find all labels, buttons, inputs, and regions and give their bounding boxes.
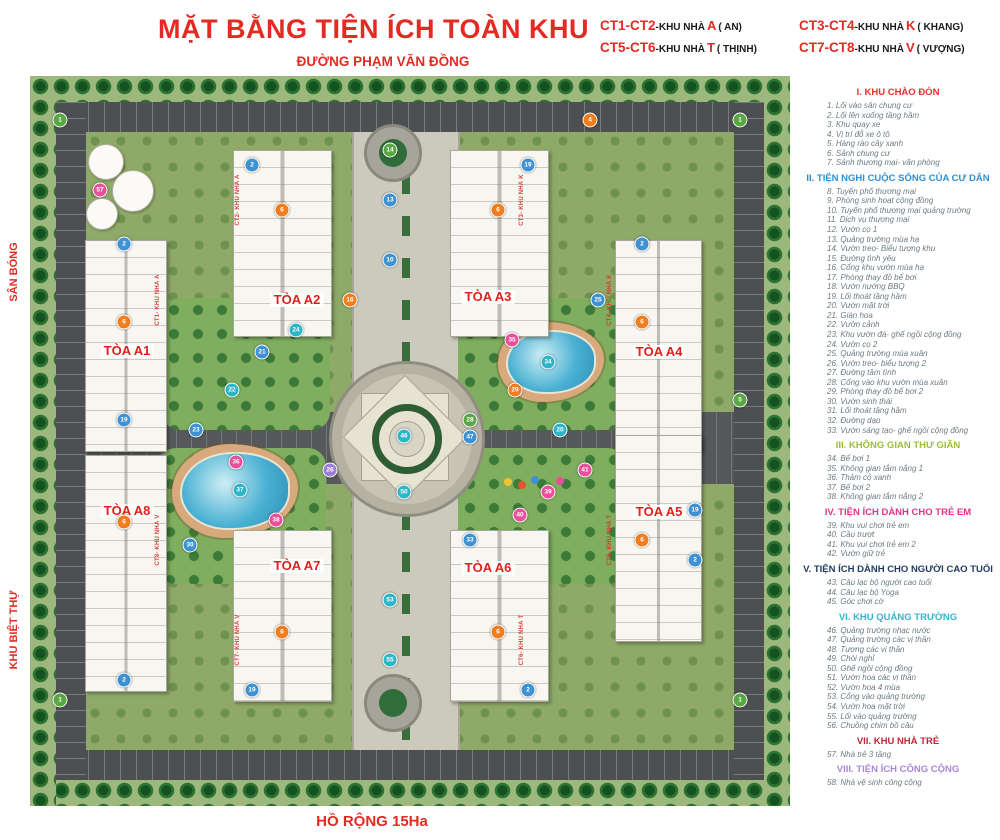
legend-item: 45. Góc chơi cờ <box>797 597 999 607</box>
legend-item: 10. Tuyến phố thương mại quảng trường <box>797 206 999 216</box>
legend-item: 24. Vườn cọ 2 <box>797 340 999 350</box>
amenity-marker-29: 29 <box>508 383 523 398</box>
amenity-marker-4: 4 <box>583 113 598 128</box>
tree-belt-top <box>30 76 790 102</box>
amenity-marker-6: 6 <box>275 203 290 218</box>
building-key-text: KHU NHÀ <box>659 44 705 55</box>
tower-label-tòa-a4: TÒA A4 <box>633 345 686 359</box>
amenity-marker-19: 19 <box>245 683 260 698</box>
tree-belt-right <box>764 76 790 806</box>
ring-road-left <box>56 102 86 780</box>
legend-item: 35. Không gian tắm nắng 1 <box>797 464 999 474</box>
building-key-letter: V <box>906 40 915 55</box>
legend-item: 28. Cổng vào khu vườn mùa xuân <box>797 378 999 388</box>
legend-item: 46. Quảng trường nhạc nước <box>797 626 999 636</box>
legend-item: 8. Tuyến phố thương mại <box>797 187 999 197</box>
amenity-marker-46: 46 <box>397 429 412 444</box>
amenity-marker-14: 14 <box>383 143 398 158</box>
legend-panel: I. KHU CHÀO ĐÓN1. Lối vào sân chung cư2.… <box>797 82 999 790</box>
amenity-marker-36: 36 <box>229 455 244 470</box>
legend-item: 14. Vườn treo- Biểu tượng khu <box>797 244 999 254</box>
legend-item: 49. Chòi nghỉ <box>797 654 999 664</box>
building-key-suffix: ( KHANG) <box>917 22 963 33</box>
legend-item: 20. Vườn mặt trời <box>797 301 999 311</box>
building-a8 <box>85 455 167 692</box>
amenity-marker-23: 23 <box>189 423 204 438</box>
building-tag-3: CT3- KHU NHÀ K <box>519 174 525 225</box>
legend-item: 50. Ghế ngồi cộng đồng <box>797 664 999 674</box>
kindergarten-building-2 <box>112 170 154 212</box>
ring-road-right <box>734 102 764 780</box>
roundabout-south <box>364 674 422 732</box>
amenity-marker-2: 2 <box>245 158 260 173</box>
legend-item: 39. Khu vui chơi trẻ em <box>797 521 999 531</box>
building-key-letter: T <box>707 40 715 55</box>
legend-section-header-6: VI. KHU QUẢNG TRƯỜNG <box>797 612 999 623</box>
amenity-marker-1: 1 <box>733 693 748 708</box>
legend-section-header-2: II. TIỆN NGHI CUỘC SỐNG CỦA CƯ DÂN <box>797 173 999 184</box>
legend-item: 37. Bể bơi 2 <box>797 483 999 493</box>
amenity-marker-2: 2 <box>117 237 132 252</box>
amenity-marker-5: 5 <box>733 393 748 408</box>
amenity-marker-2: 2 <box>117 673 132 688</box>
building-a3 <box>450 150 549 337</box>
edge-label-khu-biet-thu: KHU BIỆT THỰ <box>8 591 20 670</box>
legend-item: 33. Vườn sáng tạo- ghế ngồi cộng đồng <box>797 426 999 436</box>
building-a7 <box>233 530 332 702</box>
building-tag-5: CT5- KHU NHÀ T <box>607 515 613 566</box>
legend-item: 29. Phòng thay đồ bể bơi 2 <box>797 387 999 397</box>
amenity-marker-6: 6 <box>635 533 650 548</box>
legend-item: 7. Sảnh thương mại- văn phòng <box>797 158 999 168</box>
amenity-marker-2: 2 <box>688 553 703 568</box>
legend-item: 21. Giàn hoa <box>797 311 999 321</box>
legend-section-header-5: V. TIỆN ÍCH DÀNH CHO NGƯỜI CAO TUỔI <box>797 564 999 575</box>
building-key-code: CT1-CT2 <box>600 18 656 33</box>
legend-item: 9. Phòng sinh hoạt cộng đồng <box>797 196 999 206</box>
legend-item: 25. Quảng trường mùa xuân <box>797 349 999 359</box>
legend-item: 4. Vị trí đỗ xe ô tô <box>797 130 999 140</box>
amenity-marker-50: 50 <box>397 485 412 500</box>
building-key: CT1-CT2 - KHU NHÀA( AN)CT3-CT4 - KHU NHÀ… <box>600 18 998 62</box>
legend-item: 16. Cổng khu vườn mùa hạ <box>797 263 999 273</box>
amenity-marker-35: 35 <box>505 333 520 348</box>
building-tag-7: CT7- KHU NHÀ V <box>235 614 241 665</box>
building-a6 <box>450 530 549 702</box>
amenity-marker-6: 6 <box>275 625 290 640</box>
legend-item: 57. Nhà trẻ 3 tầng <box>797 750 999 760</box>
amenity-marker-25: 25 <box>591 293 606 308</box>
amenity-marker-1: 1 <box>53 693 68 708</box>
legend-item: 2. Lối lên xuống tầng hầm <box>797 111 999 121</box>
playground <box>504 478 512 486</box>
amenity-marker-19: 19 <box>521 158 536 173</box>
building-key-line-1: CT1-CT2 - KHU NHÀA( AN) <box>600 18 799 40</box>
amenity-marker-47: 47 <box>463 430 478 445</box>
legend-item: 30. Vườn sinh thái <box>797 397 999 407</box>
amenity-marker-38: 38 <box>269 513 284 528</box>
legend-item: 36. Thảm cỏ xanh <box>797 473 999 483</box>
amenity-marker-2: 2 <box>521 683 536 698</box>
building-key-code: CT7-CT8 <box>799 40 855 55</box>
building-tag-4: CT4- KHU NHÀ K <box>607 274 613 325</box>
legend-item: 48. Tượng các vị thần <box>797 645 999 655</box>
building-tag-6: CT6- KHU NHÀ T <box>519 615 525 666</box>
building-key-line-2: CT3-CT4 - KHU NHÀK( KHANG) <box>799 18 998 40</box>
building-tag-8: CT8- KHU NHÀ V <box>155 514 161 565</box>
road-label-top: ĐƯỜNG PHẠM VĂN ĐỒNG <box>297 54 470 69</box>
legend-item: 31. Lối thoát tầng hầm <box>797 406 999 416</box>
tree-belt-bottom <box>30 780 790 806</box>
legend-item: 44. Câu lạc bộ Yoga <box>797 588 999 598</box>
legend-item: 34. Bể bơi 1 <box>797 454 999 464</box>
building-key-suffix: ( AN) <box>718 22 742 33</box>
legend-section-header-1: I. KHU CHÀO ĐÓN <box>797 87 999 98</box>
site-plan-page: MẶT BẰNG TIỆN ÍCH TOÀN KHU CT1-CT2 - KHU… <box>0 0 1000 840</box>
legend-item: 13. Quảng trường mùa hạ <box>797 235 999 245</box>
building-key-letter: K <box>906 18 915 33</box>
legend-item: 52. Vườn hoa 4 mùa <box>797 683 999 693</box>
tower-label-tòa-a1: TÒA A1 <box>101 344 154 358</box>
page-title: MẶT BẰNG TIỆN ÍCH TOÀN KHU <box>158 14 589 45</box>
legend-item: 54. Vườn hoa mặt trời <box>797 702 999 712</box>
legend-item: 51. Vườn hoa các vị thần <box>797 673 999 683</box>
legend-item: 58. Nhà vệ sinh công cộng <box>797 778 999 788</box>
amenity-marker-39: 39 <box>541 485 556 500</box>
building-key-line-3: CT5-CT6 - KHU NHÀT( THỊNH) <box>600 40 799 62</box>
amenity-marker-16: 16 <box>343 293 358 308</box>
amenity-marker-41: 41 <box>578 463 593 478</box>
amenity-marker-21: 21 <box>255 345 270 360</box>
amenity-marker-37: 37 <box>233 483 248 498</box>
legend-item: 41. Khu vui chơi trẻ em 2 <box>797 540 999 550</box>
amenity-marker-40: 40 <box>513 508 528 523</box>
amenity-marker-33: 33 <box>463 533 478 548</box>
building-key-line-4: CT7-CT8 - KHU NHÀV( VƯỢNG) <box>799 40 998 62</box>
kindergarten-building-3 <box>86 198 118 230</box>
amenity-marker-30: 30 <box>183 538 198 553</box>
amenity-marker-6: 6 <box>491 203 506 218</box>
amenity-marker-24: 24 <box>289 323 304 338</box>
edge-label-lake: HỒ RỘNG 15Ha <box>316 813 428 830</box>
building-a5 <box>615 435 702 642</box>
building-a2 <box>233 150 332 337</box>
building-tag-1: CT1- KHU NHÀ A <box>155 274 161 325</box>
legend-item: 19. Lối thoát tầng hầm <box>797 292 999 302</box>
building-tag-2: CT2- KHU NHÀ A <box>235 174 241 225</box>
legend-item: 56. Chuồng chim bồ câu <box>797 721 999 731</box>
legend-item: 17. Phòng thay đồ bể bơi <box>797 273 999 283</box>
legend-item: 32. Đường dạo <box>797 416 999 426</box>
legend-item: 18. Vườn nướng BBQ <box>797 282 999 292</box>
amenity-marker-10: 10 <box>383 253 398 268</box>
legend-item: 22. Vườn cảnh <box>797 320 999 330</box>
amenity-marker-19: 19 <box>117 413 132 428</box>
amenity-marker-1: 1 <box>733 113 748 128</box>
edge-label-san-bong: SÂN BÓNG <box>8 242 20 301</box>
legend-item: 1. Lối vào sân chung cư <box>797 101 999 111</box>
legend-item: 47. Quảng trường các vị thần <box>797 635 999 645</box>
legend-item: 26. Vườn treo- biểu tượng 2 <box>797 359 999 369</box>
amenity-marker-22: 22 <box>225 383 240 398</box>
tower-label-tòa-a3: TÒA A3 <box>462 290 515 304</box>
legend-item: 42. Vườn giữ trẻ <box>797 549 999 559</box>
building-key-suffix: ( VƯỢNG) <box>917 44 965 55</box>
legend-item: 38. Không gian tắm nắng 2 <box>797 492 999 502</box>
master-plan-map: TÒA A1TÒA A2TÒA A3TÒA A4TÒA A5TÒA A6TÒA … <box>30 76 790 806</box>
legend-item: 55. Lối vào quảng trường <box>797 712 999 722</box>
building-key-code: CT3-CT4 <box>799 18 855 33</box>
legend-item: 5. Hàng rào cây xanh <box>797 139 999 149</box>
legend-item: 15. Đường tình yêu <box>797 254 999 264</box>
legend-item: 6. Sảnh chung cư <box>797 149 999 159</box>
legend-item: 43. Câu lạc bộ người cao tuổi <box>797 578 999 588</box>
amenity-marker-6: 6 <box>117 315 132 330</box>
amenity-marker-20: 20 <box>553 423 568 438</box>
amenity-marker-2: 2 <box>635 237 650 252</box>
amenity-marker-28: 28 <box>463 413 478 428</box>
building-key-text: KHU NHÀ <box>858 22 904 33</box>
amenity-marker-6: 6 <box>491 625 506 640</box>
tower-label-tòa-a7: TÒA A7 <box>271 559 324 573</box>
ring-road-top <box>56 102 764 132</box>
legend-section-header-3: III. KHÔNG GIAN THƯ GIÃN <box>797 440 999 451</box>
building-key-text: KHU NHÀ <box>659 22 705 33</box>
legend-item: 53. Cổng vào quảng trường <box>797 692 999 702</box>
legend-item: 40. Cầu trượt <box>797 530 999 540</box>
amenity-marker-6: 6 <box>635 315 650 330</box>
legend-section-header-4: IV. TIỆN ÍCH DÀNH CHO TRẺ EM <box>797 507 999 518</box>
legend-item: 23. Khu vườn đá- ghế ngồi cộng đồng <box>797 330 999 340</box>
building-key-letter: A <box>707 18 716 33</box>
amenity-marker-53: 53 <box>383 593 398 608</box>
building-key-code: CT5-CT6 <box>600 40 656 55</box>
amenity-marker-26: 26 <box>323 463 338 478</box>
tower-label-tòa-a5: TÒA A5 <box>633 505 686 519</box>
building-key-text: KHU NHÀ <box>858 44 904 55</box>
tower-label-tòa-a6: TÒA A6 <box>462 561 515 575</box>
ring-road-bottom <box>56 750 764 780</box>
amenity-marker-1: 1 <box>53 113 68 128</box>
legend-item: 12. Vườn cọ 1 <box>797 225 999 235</box>
amenity-marker-19: 19 <box>688 503 703 518</box>
amenity-marker-55: 55 <box>383 653 398 668</box>
legend-item: 11. Dịch vụ thương mại <box>797 215 999 225</box>
amenity-marker-6: 6 <box>117 515 132 530</box>
legend-item: 3. Khu quay xe <box>797 120 999 130</box>
legend-section-header-8: VIII. TIỆN ÍCH CÔNG CỘNG <box>797 764 999 775</box>
amenity-marker-13: 13 <box>383 193 398 208</box>
legend-section-header-7: VII. KHU NHÀ TRẺ <box>797 736 999 747</box>
legend-item: 27. Đường tâm tình <box>797 368 999 378</box>
tower-label-tòa-a2: TÒA A2 <box>271 293 324 307</box>
building-key-suffix: ( THỊNH) <box>717 44 757 55</box>
amenity-marker-57: 57 <box>93 183 108 198</box>
amenity-marker-34: 34 <box>541 355 556 370</box>
